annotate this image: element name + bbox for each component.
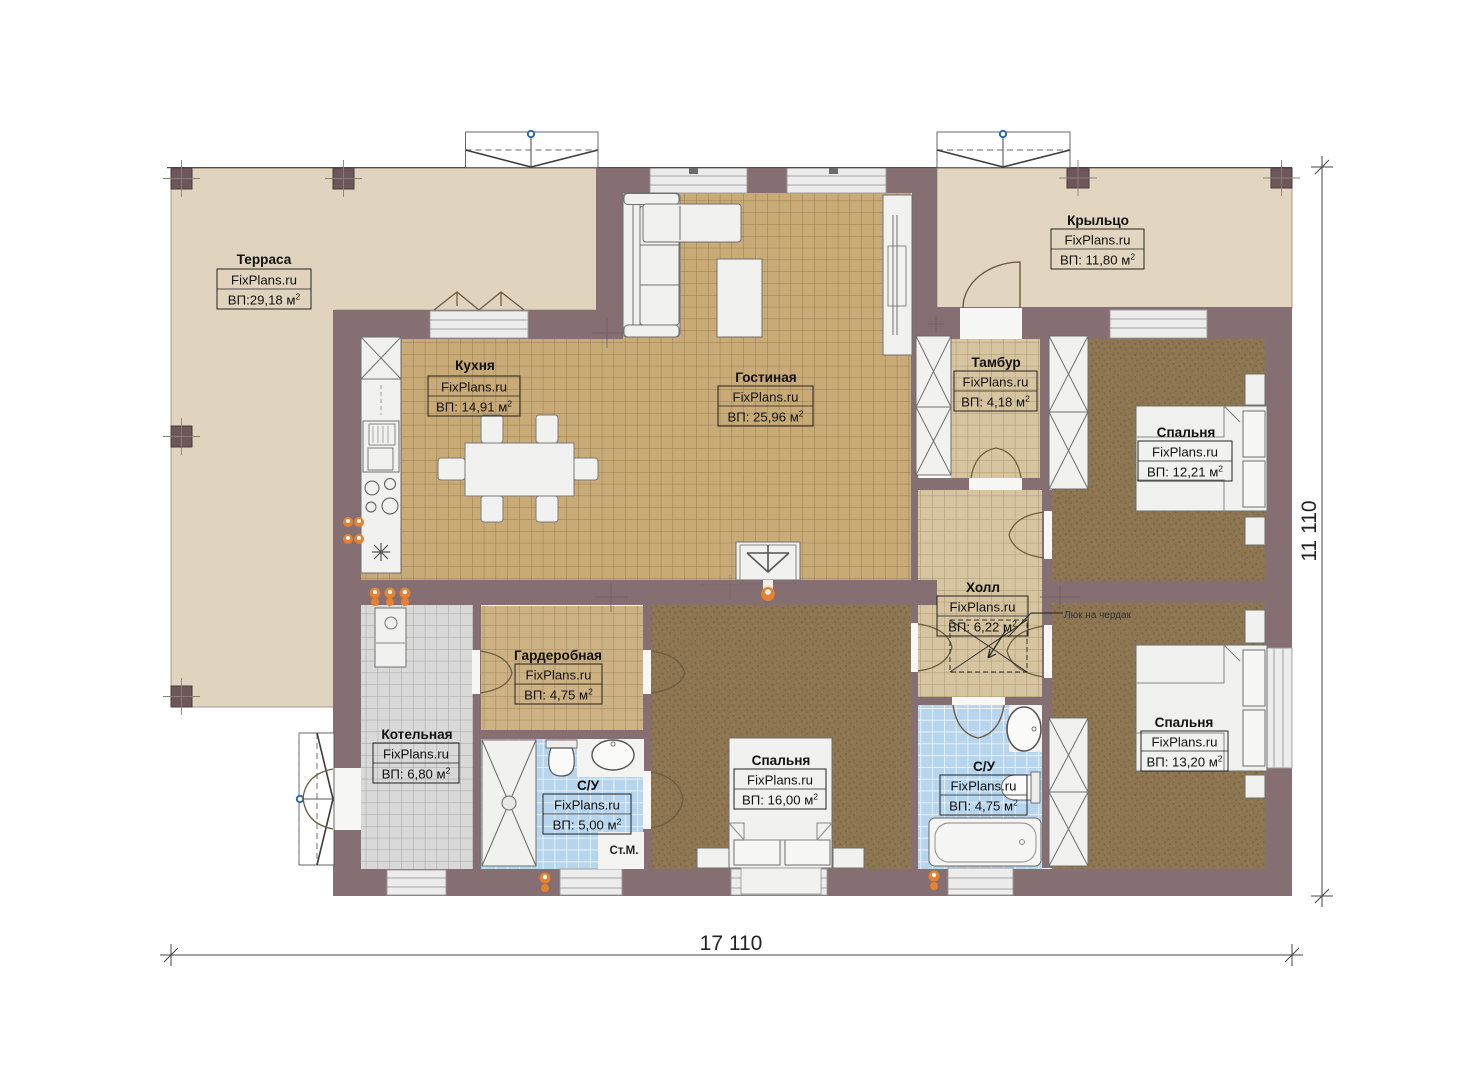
svg-text:FixPlans.ru: FixPlans.ru xyxy=(733,390,799,405)
svg-text:ВП: 14,91 м2: ВП: 14,91 м2 xyxy=(436,399,512,415)
svg-text:Котельная: Котельная xyxy=(381,727,452,742)
svg-text:Спальня: Спальня xyxy=(1157,425,1216,440)
svg-text:ВП: 4,75 м2: ВП: 4,75 м2 xyxy=(949,798,1018,814)
svg-text:С/У: С/У xyxy=(973,759,996,774)
svg-text:ВП: 6,22 м2: ВП: 6,22 м2 xyxy=(948,619,1017,635)
svg-text:ВП: 5,00 м2: ВП: 5,00 м2 xyxy=(553,817,622,833)
svg-text:ВП: 16,00 м2: ВП: 16,00 м2 xyxy=(742,792,818,808)
svg-text:ВП: 13,20 м2: ВП: 13,20 м2 xyxy=(1146,754,1222,770)
svg-text:ВП: 6,80 м2: ВП: 6,80 м2 xyxy=(382,766,451,782)
svg-text:Крыльцо: Крыльцо xyxy=(1067,213,1129,228)
svg-text:ВП:29,18 м2: ВП:29,18 м2 xyxy=(228,292,301,308)
svg-text:FixPlans.ru: FixPlans.ru xyxy=(441,380,507,395)
svg-text:FixPlans.ru: FixPlans.ru xyxy=(1152,445,1218,460)
svg-text:ВП: 4,75 м2: ВП: 4,75 м2 xyxy=(524,687,593,703)
svg-text:ВП: 4,18 м2: ВП: 4,18 м2 xyxy=(961,394,1030,410)
svg-text:Спальня: Спальня xyxy=(1155,715,1214,730)
svg-text:FixPlans.ru: FixPlans.ru xyxy=(950,600,1016,615)
svg-text:FixPlans.ru: FixPlans.ru xyxy=(526,668,592,683)
svg-text:11 110: 11 110 xyxy=(1298,500,1321,561)
svg-text:Холл: Холл xyxy=(966,580,1000,595)
svg-text:FixPlans.ru: FixPlans.ru xyxy=(951,779,1017,794)
svg-text:ВП: 25,96 м2: ВП: 25,96 м2 xyxy=(727,409,803,425)
svg-text:FixPlans.ru: FixPlans.ru xyxy=(383,747,449,762)
svg-text:Гардеробная: Гардеробная xyxy=(514,648,602,663)
svg-text:Гостиная: Гостиная xyxy=(735,370,796,385)
svg-text:FixPlans.ru: FixPlans.ru xyxy=(1065,233,1131,248)
svg-text:FixPlans.ru: FixPlans.ru xyxy=(554,798,620,813)
svg-text:Люк на чердак: Люк на чердак xyxy=(1064,610,1132,621)
svg-text:Спальня: Спальня xyxy=(752,753,811,768)
svg-text:FixPlans.ru: FixPlans.ru xyxy=(963,375,1029,390)
svg-text:Терраса: Терраса xyxy=(237,252,292,267)
svg-text:Кухня: Кухня xyxy=(455,358,495,373)
svg-text:ВП: 12,21 м2: ВП: 12,21 м2 xyxy=(1147,464,1223,480)
svg-text:FixPlans.ru: FixPlans.ru xyxy=(1152,735,1218,750)
svg-text:С/У: С/У xyxy=(577,778,600,793)
svg-text:FixPlans.ru: FixPlans.ru xyxy=(747,773,813,788)
svg-text:FixPlans.ru: FixPlans.ru xyxy=(231,273,297,288)
svg-text:ВП: 11,80 м2: ВП: 11,80 м2 xyxy=(1060,252,1135,268)
svg-text:Тамбур: Тамбур xyxy=(971,355,1020,370)
svg-text:Ст.М.: Ст.М. xyxy=(610,845,639,857)
svg-text:17 110: 17 110 xyxy=(700,932,763,955)
